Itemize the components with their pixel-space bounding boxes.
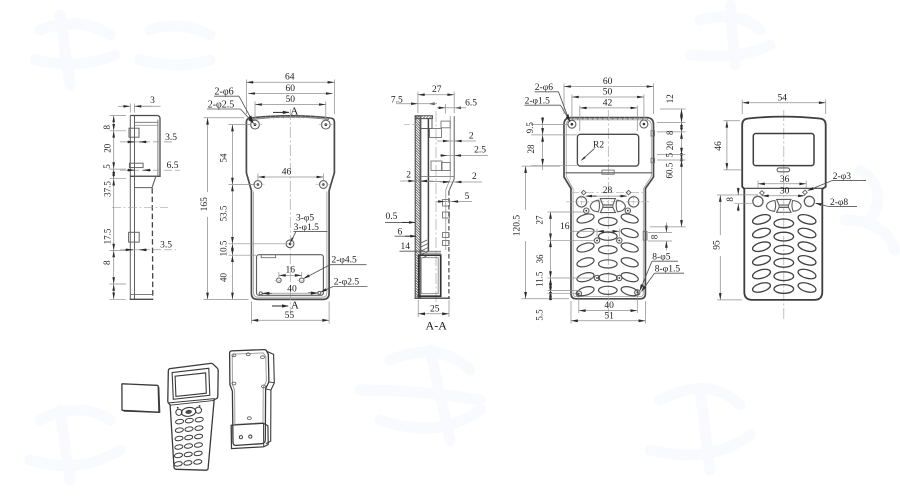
svg-text:27: 27 [432, 85, 442, 95]
svg-text:40: 40 [219, 273, 229, 283]
svg-text:28: 28 [603, 186, 613, 196]
svg-text:A-A: A-A [426, 319, 448, 333]
svg-text:9.5: 9.5 [525, 122, 535, 134]
svg-text:5: 5 [102, 164, 112, 169]
svg-text:8: 8 [665, 130, 675, 135]
svg-text:36: 36 [780, 175, 790, 185]
svg-text:95: 95 [712, 240, 722, 250]
svg-text:3.5: 3.5 [165, 133, 177, 143]
svg-text:A: A [291, 299, 299, 311]
svg-text:3: 3 [150, 96, 155, 106]
svg-text:42: 42 [603, 99, 613, 109]
svg-text:60: 60 [285, 84, 295, 94]
svg-text:40: 40 [287, 285, 297, 295]
svg-text:120.5: 120.5 [513, 215, 523, 237]
svg-text:14: 14 [401, 242, 411, 252]
svg-text:11.5: 11.5 [535, 271, 545, 287]
svg-text:60.5: 60.5 [665, 162, 675, 178]
svg-text:6.5: 6.5 [465, 98, 477, 108]
svg-text:36: 36 [535, 254, 545, 264]
svg-text:2-φ4.5: 2-φ4.5 [332, 255, 358, 265]
svg-text:60: 60 [603, 77, 613, 87]
svg-text:A: A [290, 106, 298, 118]
svg-text:8: 8 [649, 234, 659, 239]
svg-text:2: 2 [469, 131, 474, 141]
svg-text:28: 28 [526, 144, 536, 154]
svg-text:5.5: 5.5 [535, 309, 545, 321]
svg-text:50: 50 [603, 87, 613, 97]
svg-text:2.5: 2.5 [474, 146, 486, 156]
svg-text:40: 40 [604, 301, 614, 311]
svg-text:6.5: 6.5 [167, 161, 179, 171]
svg-text:3.5: 3.5 [160, 240, 172, 250]
svg-text:3-φ5: 3-φ5 [296, 214, 314, 224]
svg-text:5: 5 [465, 192, 470, 202]
svg-text:64: 64 [285, 73, 295, 83]
svg-text:2: 2 [472, 172, 477, 182]
svg-text:20: 20 [103, 143, 113, 153]
svg-text:16: 16 [286, 266, 296, 276]
svg-text:25: 25 [430, 305, 440, 315]
svg-text:8: 8 [102, 260, 112, 265]
svg-text:51: 51 [604, 311, 614, 321]
svg-text:12: 12 [665, 94, 675, 103]
svg-text:54: 54 [777, 93, 787, 103]
svg-text:165: 165 [200, 197, 210, 212]
svg-text:54: 54 [219, 153, 229, 163]
svg-text:2: 2 [406, 171, 411, 181]
svg-text:50: 50 [285, 95, 295, 105]
svg-text:7.5: 7.5 [391, 95, 403, 105]
svg-text:2-φ6: 2-φ6 [215, 86, 234, 97]
svg-text:46: 46 [714, 141, 724, 151]
svg-text:8: 8 [725, 197, 735, 202]
svg-text:20: 20 [665, 141, 675, 151]
svg-text:5: 5 [665, 152, 675, 157]
svg-text:37.5: 37.5 [103, 181, 113, 197]
svg-text:55: 55 [285, 311, 295, 321]
svg-text:46: 46 [282, 168, 292, 178]
svg-text:30: 30 [780, 187, 790, 197]
svg-text:53.5: 53.5 [219, 205, 229, 221]
svg-text:16: 16 [560, 222, 570, 232]
svg-text:10.5: 10.5 [219, 240, 229, 256]
svg-text:0.5: 0.5 [386, 212, 398, 222]
svg-text:17.5: 17.5 [103, 228, 113, 244]
svg-text:27: 27 [534, 215, 544, 225]
svg-text:8: 8 [102, 124, 112, 129]
